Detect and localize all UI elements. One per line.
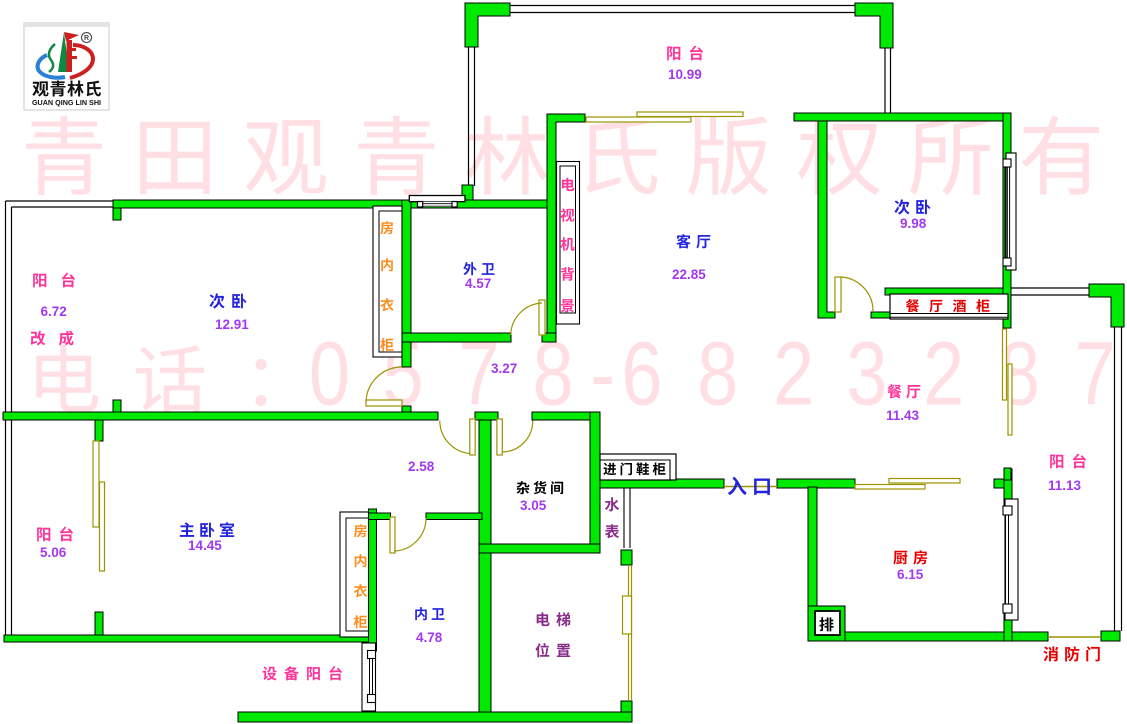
svg-text:6.72: 6.72 (41, 304, 67, 319)
svg-text:0: 0 (309, 325, 350, 425)
svg-text:14.45: 14.45 (188, 538, 222, 553)
svg-text:-: - (590, 325, 615, 425)
svg-text:R: R (84, 35, 89, 42)
svg-text:2.58: 2.58 (408, 459, 435, 474)
svg-text:22.85: 22.85 (672, 267, 706, 282)
svg-text:4.57: 4.57 (465, 276, 491, 291)
svg-text:5.06: 5.06 (40, 545, 67, 560)
svg-text:9.98: 9.98 (900, 216, 927, 231)
svg-text:2: 2 (923, 325, 964, 425)
svg-text:6.15: 6.15 (897, 567, 924, 582)
svg-text:2: 2 (773, 325, 814, 425)
svg-text:6: 6 (621, 325, 662, 425)
svg-text:3: 3 (846, 325, 887, 425)
svg-text:7: 7 (1075, 325, 1116, 425)
svg-text:12.91: 12.91 (215, 317, 249, 332)
svg-text:GUAN QING LIN SHI: GUAN QING LIN SHI (32, 98, 101, 107)
svg-text:8: 8 (697, 325, 738, 425)
svg-text:10.99: 10.99 (668, 67, 702, 82)
svg-text:4.78: 4.78 (416, 630, 443, 645)
svg-text:3.27: 3.27 (491, 361, 517, 376)
svg-text:11.13: 11.13 (1048, 478, 1082, 493)
svg-text:3.05: 3.05 (520, 498, 547, 513)
svg-text:11.43: 11.43 (886, 408, 920, 423)
